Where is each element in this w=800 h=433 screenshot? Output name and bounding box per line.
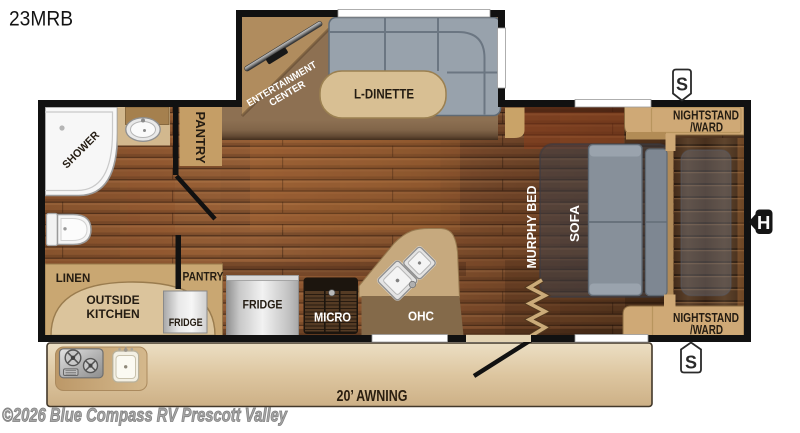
svg-text:OHC: OHC <box>408 310 434 324</box>
svg-text:20’ AWNING: 20’ AWNING <box>337 388 408 405</box>
svg-text:KITCHEN: KITCHEN <box>86 307 139 321</box>
svg-text:MICRO: MICRO <box>314 310 351 325</box>
svg-text:PANTRY: PANTRY <box>183 272 224 284</box>
svg-text:PANTRY: PANTRY <box>193 112 207 165</box>
svg-text:S: S <box>685 353 697 373</box>
svg-text:/WARD: /WARD <box>690 323 723 337</box>
svg-text:23MRB: 23MRB <box>9 8 73 31</box>
svg-text:OUTSIDE: OUTSIDE <box>86 293 139 307</box>
svg-text:/WARD: /WARD <box>690 121 723 135</box>
svg-text:FRIDGE: FRIDGE <box>169 317 203 329</box>
svg-text:©2026 Blue Compass RV Prescott: ©2026 Blue Compass RV Prescott Valley <box>2 405 288 427</box>
svg-text:MURPHY BED: MURPHY BED <box>524 186 539 269</box>
svg-text:SOFA: SOFA <box>567 204 582 242</box>
svg-text:FRIDGE: FRIDGE <box>243 298 283 312</box>
svg-text:H: H <box>757 212 770 233</box>
svg-text:S: S <box>676 75 688 95</box>
svg-text:LINEN: LINEN <box>56 273 91 285</box>
svg-text:L-DINETTE: L-DINETTE <box>354 86 414 102</box>
